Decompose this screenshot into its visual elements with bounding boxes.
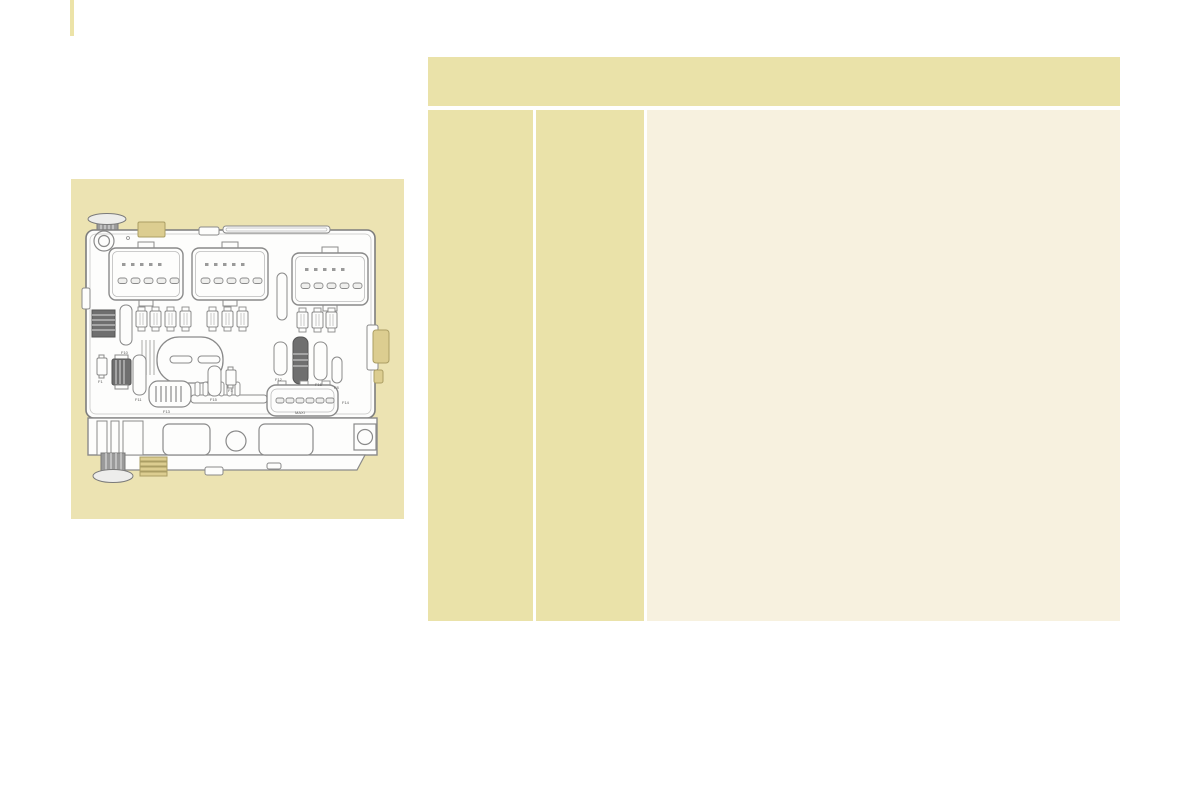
diagram-label-f16: F16 <box>315 382 323 387</box>
diagram-label-f11: F11 <box>135 397 142 402</box>
table-cell-column-3 <box>647 110 1120 621</box>
diagram-label-f1: F1 <box>98 379 103 384</box>
mini-fuse <box>222 307 233 331</box>
mini-fuse <box>180 307 191 331</box>
mini-fuse <box>150 307 161 331</box>
mini-fuse <box>165 307 176 331</box>
fusebox-diagram: F10F1F11F13F15F3F12F16F8F14MAXI <box>71 179 404 519</box>
fuse-f8 <box>332 357 342 383</box>
mini-fuse <box>297 308 308 332</box>
fuse-f3 <box>226 367 236 388</box>
fuse-f16 <box>314 342 327 380</box>
mini-fuse <box>312 308 323 332</box>
diagram-label-f8: F8 <box>334 385 339 390</box>
connector-blocks <box>109 242 368 311</box>
fuse-table <box>428 57 1120 621</box>
table-header <box>428 57 1120 106</box>
maxi-fuse-dark <box>293 337 308 384</box>
fuse-f10 <box>120 305 132 345</box>
bottom-rail <box>88 418 377 475</box>
manual-page: F10F1F11F13F15F3F12F16F8F14MAXI <box>0 0 1191 794</box>
relay-block-dark <box>112 355 131 389</box>
left-edge-tab <box>82 288 90 309</box>
table-cell-column-2 <box>536 110 644 621</box>
fusebox-figure-panel: F10F1F11F13F15F3F12F16F8F14MAXI <box>71 179 404 519</box>
diagram-label-f12: F12 <box>275 377 283 382</box>
table-body <box>428 110 1120 621</box>
fuse-f1 <box>97 355 107 378</box>
table-cell-column-1 <box>428 110 533 621</box>
fuse-f11 <box>133 355 146 395</box>
mini-fuse <box>136 307 147 331</box>
diagram-label-maxi: MAXI <box>295 410 305 415</box>
vertical-slot <box>277 273 287 320</box>
connector-block-3 <box>292 247 368 311</box>
diagram-label-f10: F10 <box>121 350 129 355</box>
connector-block-2 <box>192 242 268 306</box>
connector-block-1 <box>109 242 183 306</box>
mini-fuse <box>237 307 248 331</box>
diagram-label-f14: F14 <box>342 400 350 405</box>
diagram-label-f15: F15 <box>210 397 218 402</box>
accent-bar <box>70 0 74 36</box>
mini-fuse <box>207 307 218 331</box>
mini-fuse <box>326 308 337 332</box>
relay-block-left <box>92 310 115 337</box>
top-tab <box>138 222 165 237</box>
diagram-label-f13: F13 <box>163 409 171 414</box>
fuse-f12 <box>274 342 287 375</box>
bottom-tab-striped <box>140 457 167 476</box>
diagram-label-f3: F3 <box>228 388 233 393</box>
fuse-f15 <box>208 366 221 396</box>
